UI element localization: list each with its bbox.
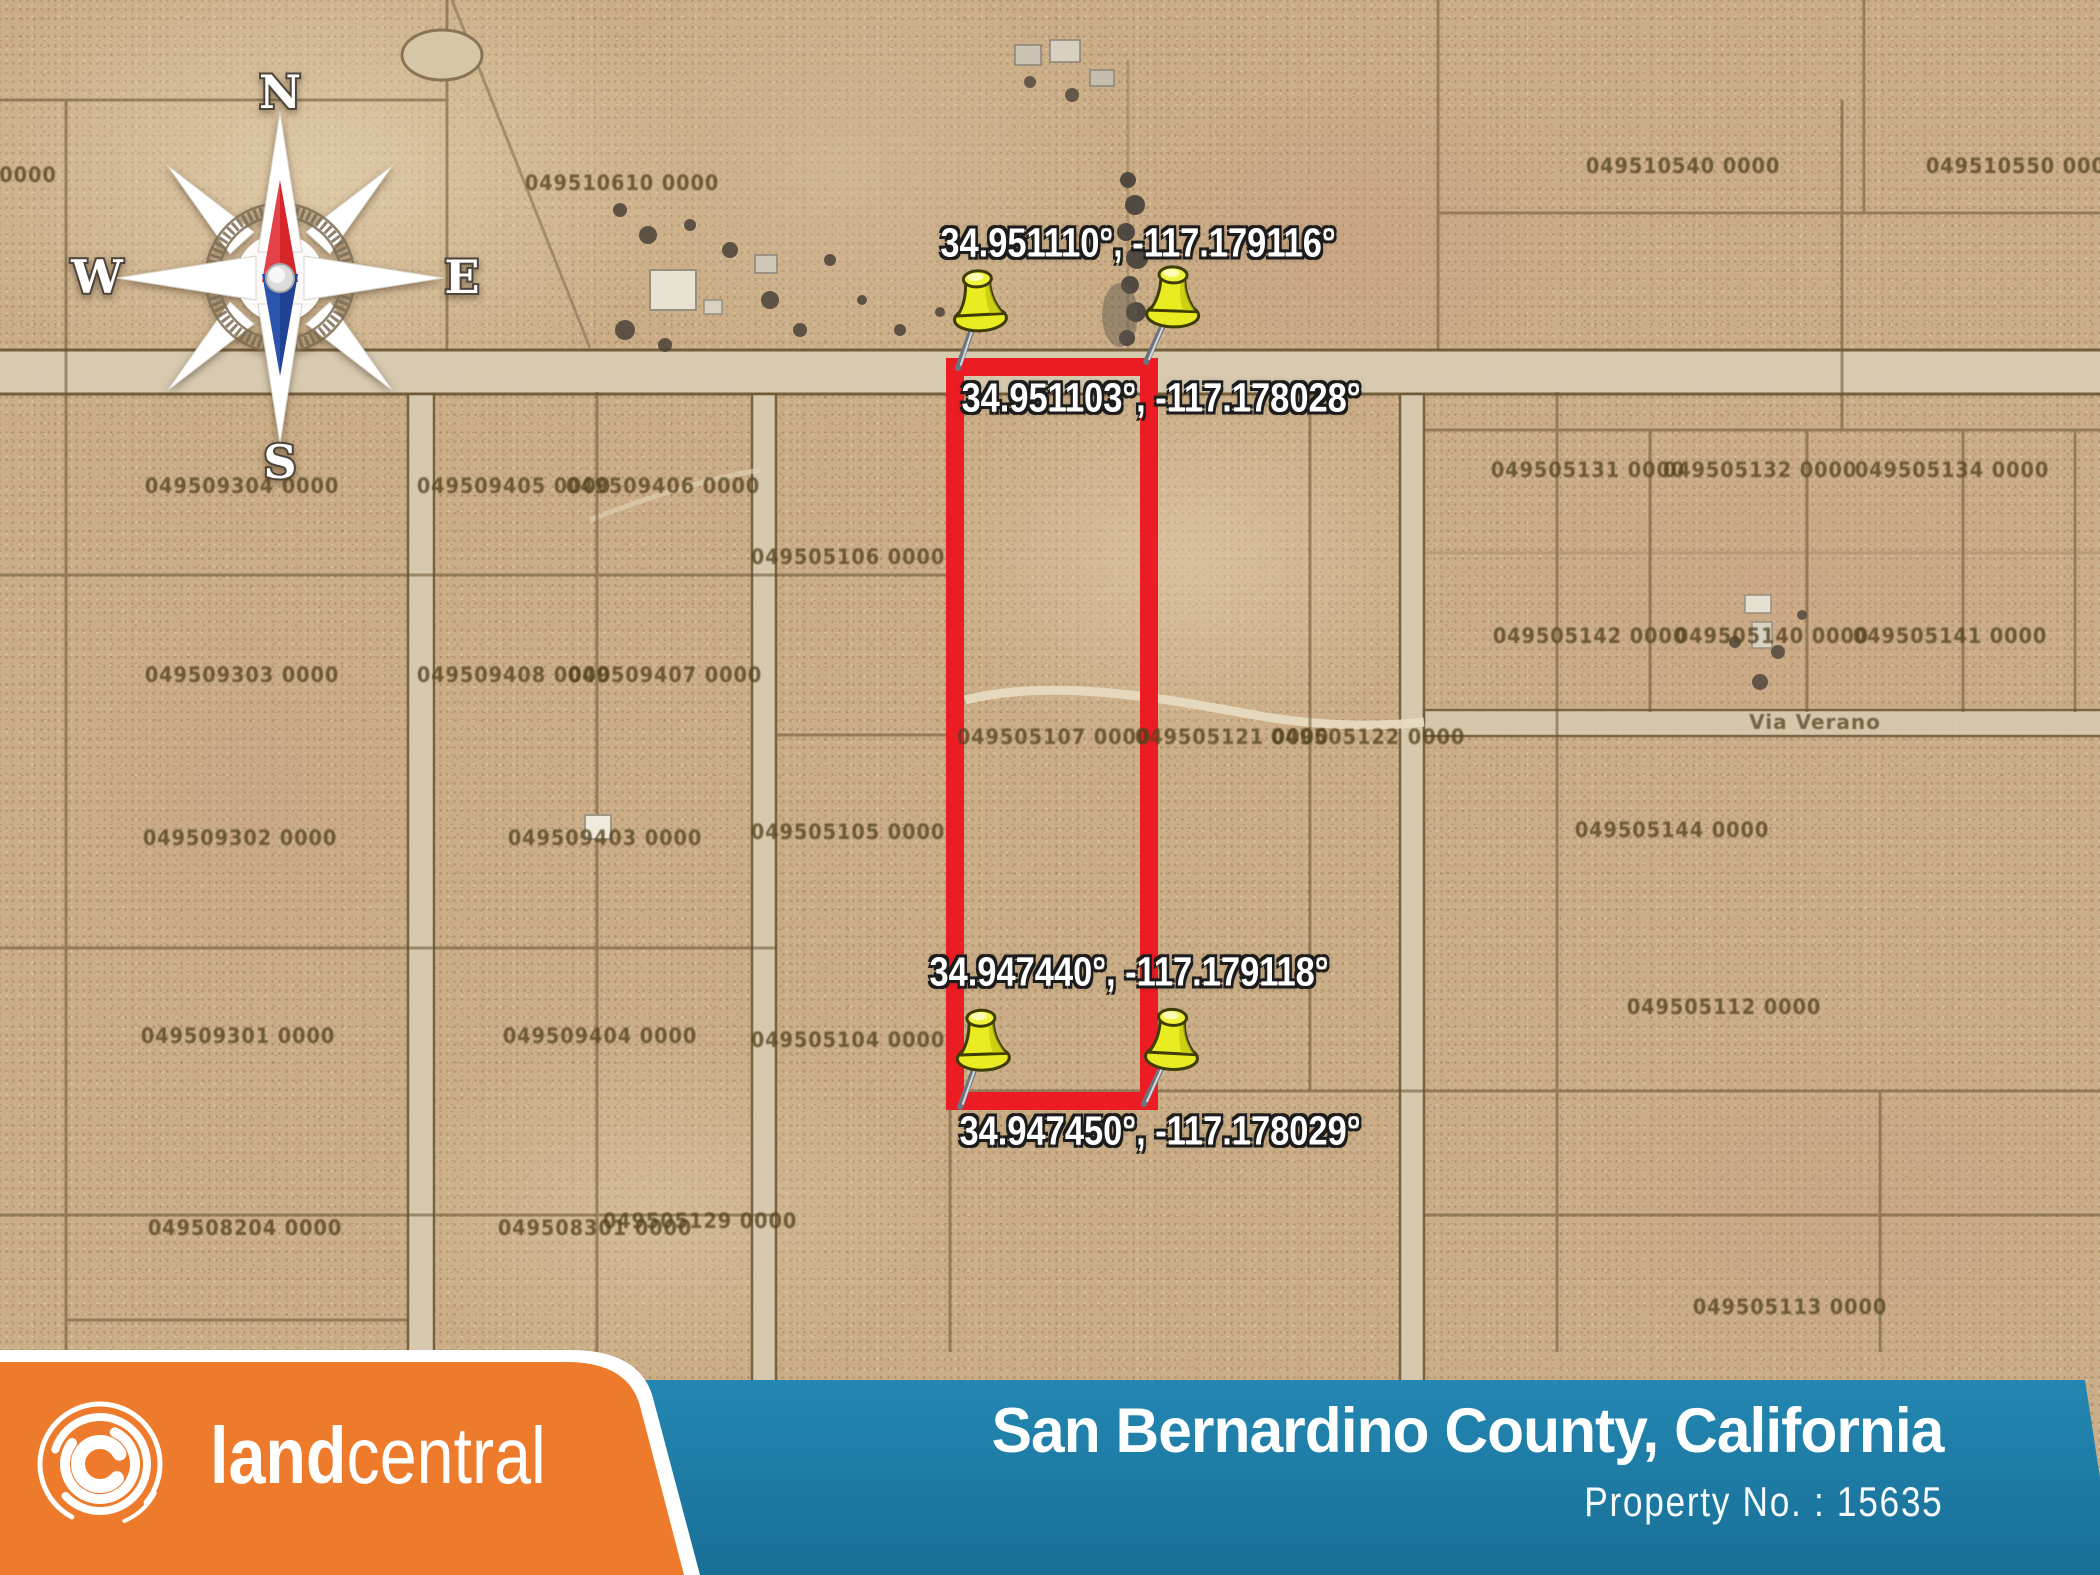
parcel-number-label: 049505129 0000 xyxy=(603,1209,797,1233)
parcel-number-label: 049509302 0000 xyxy=(143,826,337,850)
compass-e-label: E xyxy=(444,250,479,304)
parcel-number-label: 049505132 0000 xyxy=(1663,458,1857,482)
coordinate-label: 34.947450°, -117.178029° xyxy=(959,1108,1360,1155)
coordinate-label: 34.951103°, -117.178028° xyxy=(961,375,1360,422)
parcel-number-label: 0000 xyxy=(0,163,57,187)
parcel-number-label: 049505134 0000 xyxy=(1855,458,2049,482)
parcel-number-label: 049505131 0000 xyxy=(1491,458,1685,482)
coordinate-label: 34.947440°, -117.179118° xyxy=(929,949,1328,996)
parcel-number-label: 049509406 0000 xyxy=(566,474,760,498)
parcel-number-label: 049505104 0000 xyxy=(751,1028,945,1052)
parcel-number-label: 049505105 0000 xyxy=(751,820,945,844)
parcel-number-label: 049509304 0000 xyxy=(145,474,339,498)
parcel-number-label: 049510550 0000 xyxy=(1926,154,2100,178)
parcel-number-label: 049508204 0000 xyxy=(148,1216,342,1240)
parcel-number-label: 049505140 0000 xyxy=(1675,624,1869,648)
parcel-number-label: 049510540 0000 xyxy=(1586,154,1780,178)
parcel-number-label: 049505142 0000 xyxy=(1493,624,1687,648)
parcel-number-label: 049509407 0000 xyxy=(568,663,762,687)
county-info: San Bernardino County, California Proper… xyxy=(952,1398,1943,1526)
parcel-number-label: 049505144 0000 xyxy=(1575,818,1769,842)
parcel-number-label: 049505141 0000 xyxy=(1853,624,2047,648)
parcel-number-label: 049505107 0000 xyxy=(957,725,1151,749)
parcel-number-label: 049505113 0000 xyxy=(1693,1295,1887,1319)
parcel-number-label: 049509404 0000 xyxy=(503,1024,697,1048)
county-title: San Bernardino County, California xyxy=(991,1398,1943,1464)
parcel-number-label: 049509403 0000 xyxy=(508,826,702,850)
compass-n-label: N xyxy=(259,65,301,119)
parcel-number-label: 049505106 0000 xyxy=(751,545,945,569)
landcentral-logo-icon xyxy=(28,1392,178,1542)
parcel-number-label: 049509303 0000 xyxy=(145,663,339,687)
property-map-card: N S W E 0000049510610 0000049510540 0000… xyxy=(0,0,2100,1575)
coordinate-label: 34.951110°, -117.179116° xyxy=(940,220,1335,267)
brand-central: central xyxy=(346,1411,545,1500)
property-number: Property No. : 15635 xyxy=(1110,1478,1943,1526)
brand-land: land xyxy=(210,1411,346,1500)
roads xyxy=(0,0,2100,1384)
compass-w-label: W xyxy=(70,250,124,304)
road-name-label: Via Verano xyxy=(1749,710,1881,734)
parcel-number-label: 049509301 0000 xyxy=(141,1024,335,1048)
parcel-number-label: 049510610 0000 xyxy=(525,171,719,195)
parcel-number-label: 049505112 0000 xyxy=(1627,995,1821,1019)
brand-wordmark: landcentral xyxy=(210,1406,546,1506)
parcel-number-label: 049505122 0000 xyxy=(1271,725,1465,749)
